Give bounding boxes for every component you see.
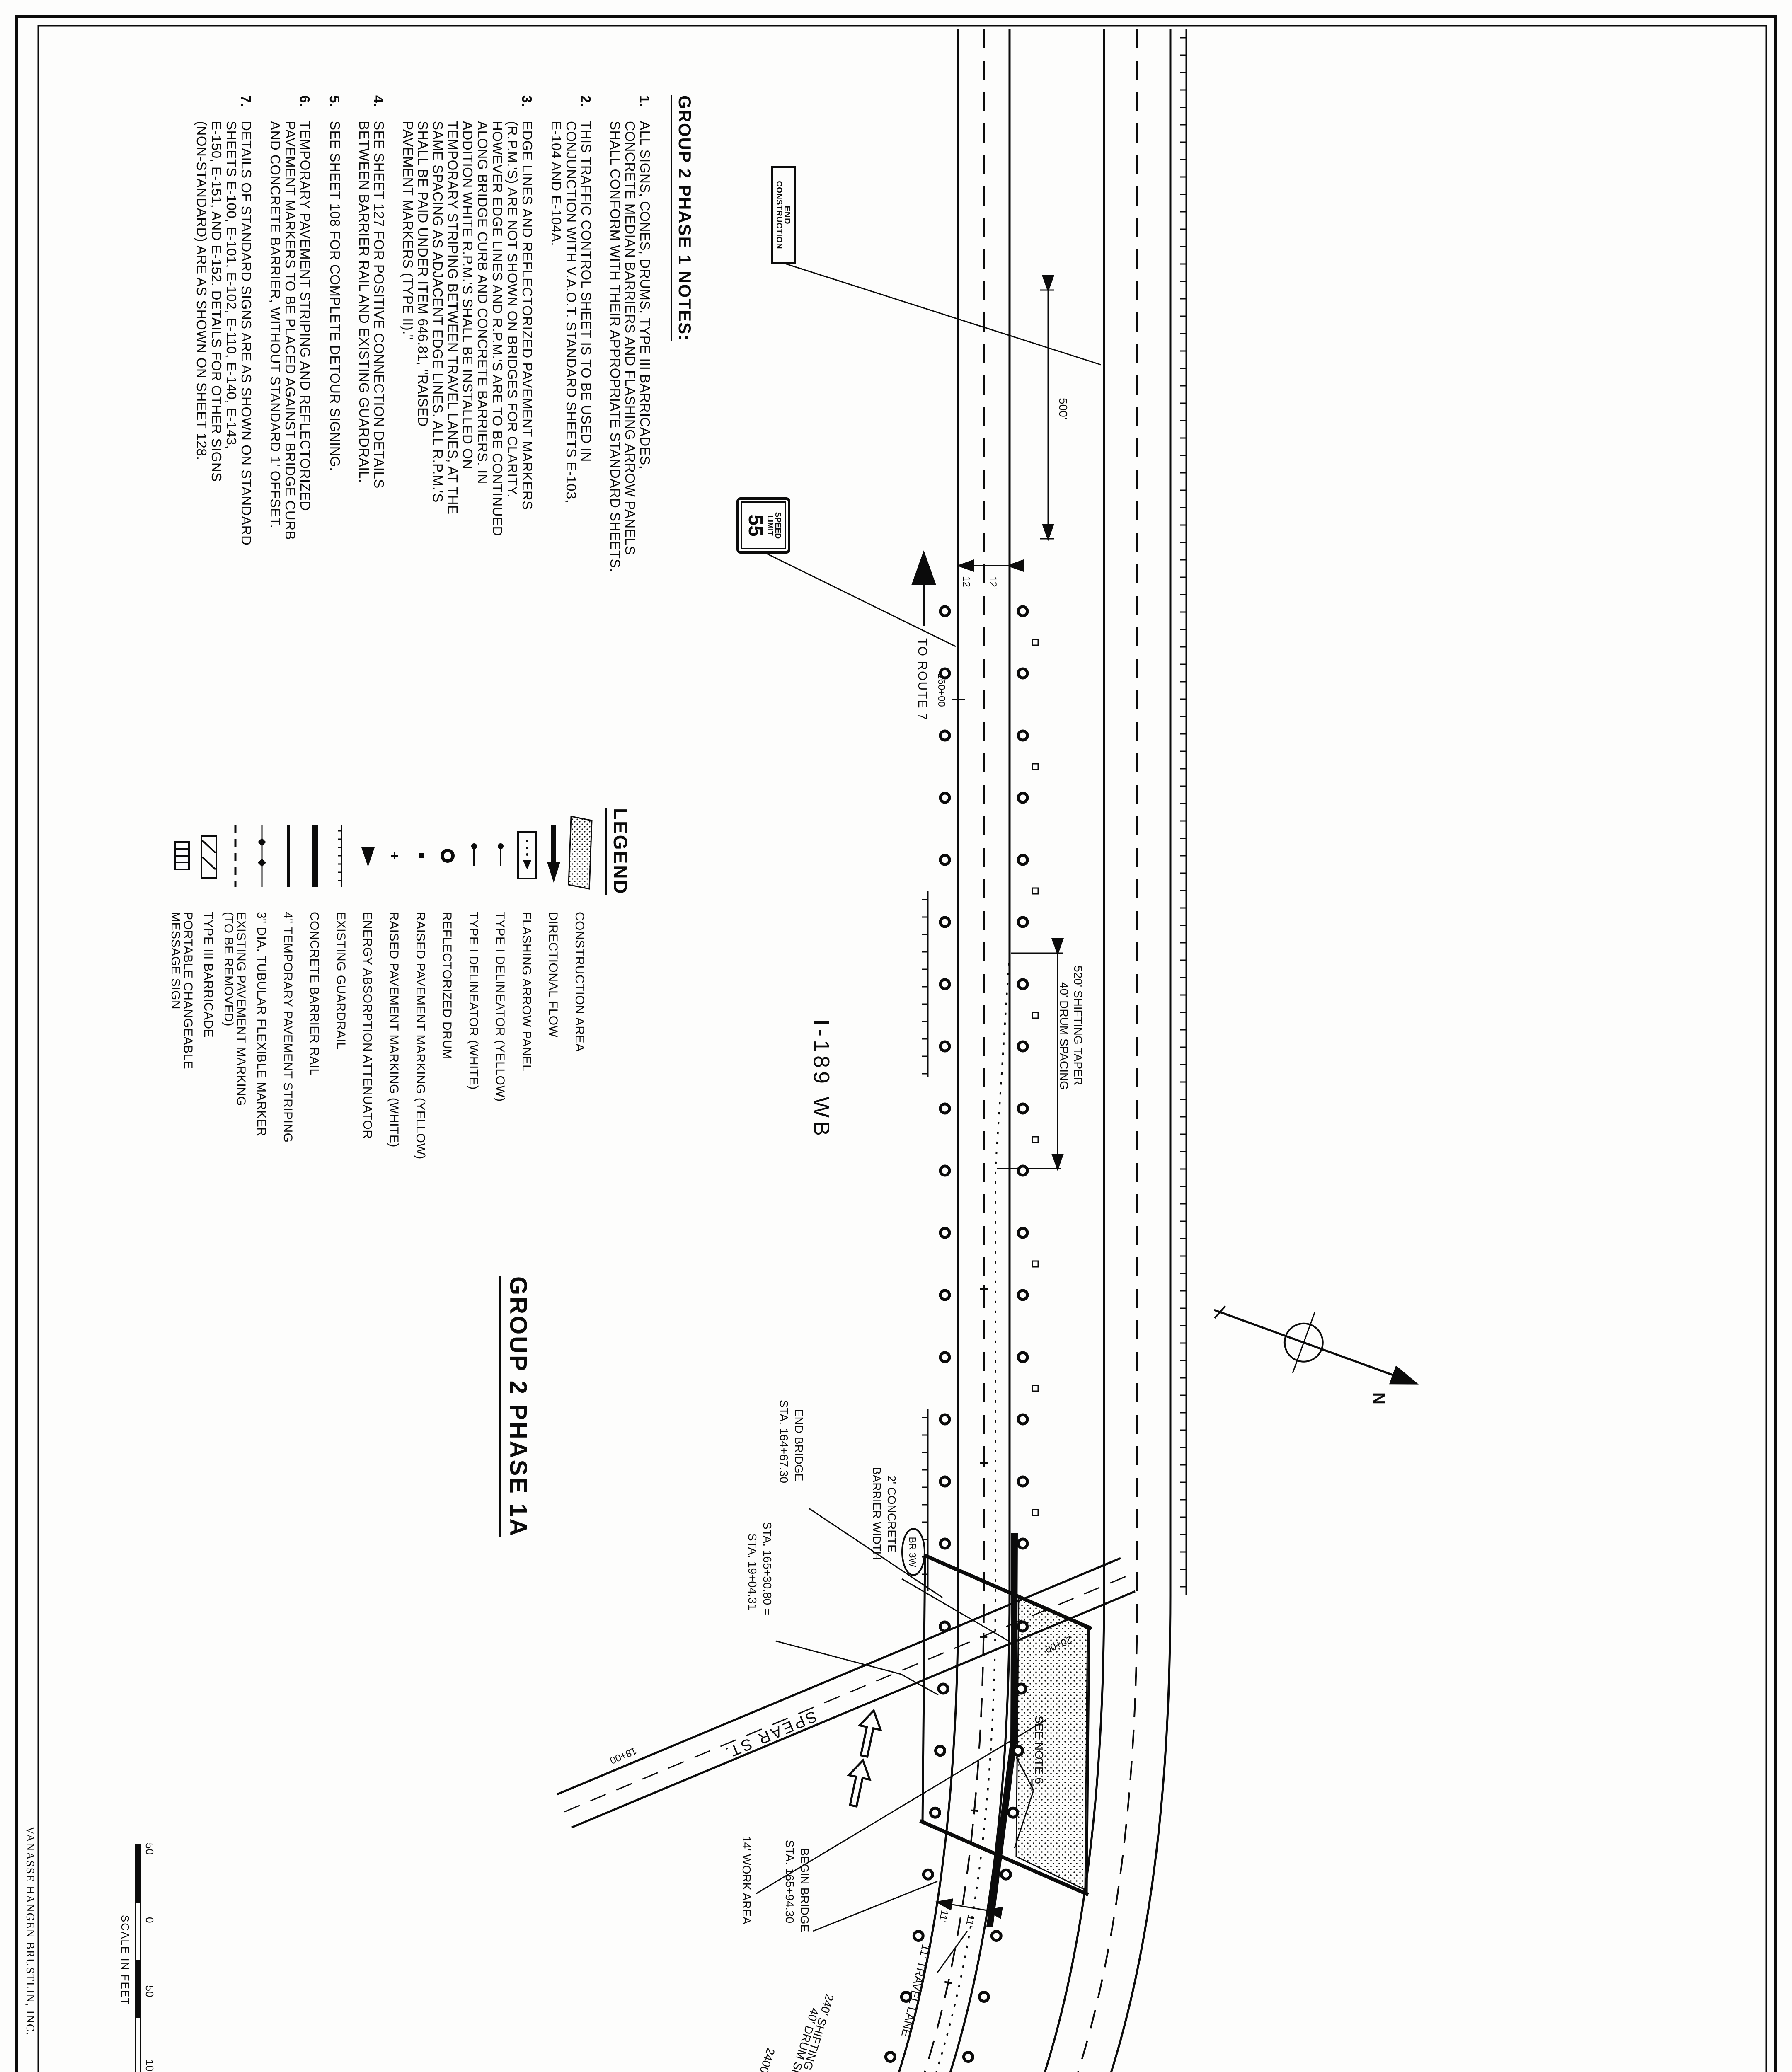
scale-num-50l: 50 bbox=[143, 1843, 156, 1855]
note-3-number: 3. bbox=[400, 95, 535, 121]
note-1-text: ALL SIGNS, CONES, DRUMS, TYPE III BARRIC… bbox=[608, 121, 652, 572]
note-7-text: DETAILS OF STANDARD SIGNS ARE AS SHOWN O… bbox=[194, 121, 254, 545]
square-marks bbox=[1032, 639, 1038, 1515]
note-6-number: 6. bbox=[268, 95, 312, 121]
legend-title: LEGEND bbox=[605, 808, 632, 895]
concrete-barrier-rail-icon bbox=[312, 825, 318, 887]
label-taper520-1: 520' SHIFTING TAPER bbox=[1072, 966, 1085, 1085]
note-2-number: 2. bbox=[549, 95, 593, 121]
plus-marks bbox=[722, 1285, 988, 2072]
scale-bar-graphic bbox=[135, 1844, 141, 2072]
end-construction-line1: END bbox=[783, 206, 792, 224]
rpm-white-icon bbox=[391, 852, 398, 859]
label-end-bridge-1: END BRIDGE bbox=[792, 1409, 805, 1481]
directional-flow-icon bbox=[547, 825, 560, 883]
tick-marks bbox=[1180, 38, 1186, 1587]
existing-guardrail-icon bbox=[338, 825, 341, 887]
speed-limit-word2: LIMIT bbox=[766, 515, 774, 536]
tick-marks bbox=[922, 900, 928, 1074]
tubular-marker-icon bbox=[258, 825, 266, 887]
label-dim12-b: 12' bbox=[961, 576, 972, 589]
note-4-text: SEE SHEET 127 FOR POSITIVE CONNECTION DE… bbox=[356, 121, 386, 489]
scale-numbers: 50 0 50 100 bbox=[143, 1843, 156, 2072]
note-6: 6. TEMPORARY PAVEMENT STRIPING AND REFLE… bbox=[268, 95, 312, 588]
legend-symbols bbox=[167, 808, 593, 908]
scale-num-50r: 50 bbox=[143, 1985, 156, 1997]
drum-marks bbox=[842, 1622, 949, 2072]
construction-area-icon bbox=[569, 816, 592, 889]
scale-num-100: 100 bbox=[143, 2060, 156, 2072]
rpm-line bbox=[724, 1202, 984, 2072]
note-2: 2. THIS TRAFFIC CONTROL SHEET IS TO BE U… bbox=[549, 95, 593, 588]
note-4: 4. SEE SHEET 127 FOR POSITIVE CONNECTION… bbox=[356, 95, 386, 588]
note-1: 1. ALL SIGNS, CONES, DRUMS, TYPE III BAR… bbox=[608, 95, 652, 588]
label-work-area: 14' WORK AREA bbox=[740, 1836, 753, 1924]
landscape-sheet: BR 3W bbox=[0, 0, 1792, 2072]
note-2-text: THIS TRAFFIC CONTROL SHEET IS TO BE USED… bbox=[549, 121, 593, 503]
speed-limit-word1: SPEED bbox=[774, 512, 782, 539]
label-end-bridge-2: STA. 164+67.30 bbox=[777, 1400, 790, 1483]
label-see-note-6: SEE NOTE 6 bbox=[1033, 1716, 1046, 1784]
bridge-fascia-bottom bbox=[923, 1558, 925, 1823]
label-sta-eq-2: STA. 19+04.31 bbox=[746, 1533, 759, 1610]
note-5: 5. SEE SHEET 108 FOR COMPLETE DETOUR SIG… bbox=[327, 95, 342, 588]
bridge-end-left bbox=[923, 1555, 1092, 1629]
flashing-arrow-panel-icon bbox=[518, 832, 536, 879]
portable-message-sign-icon bbox=[175, 842, 189, 869]
note-4-number: 4. bbox=[356, 95, 386, 121]
label-dim12-a: 12' bbox=[987, 576, 998, 589]
bridge-number-text: BR 3W bbox=[907, 1537, 918, 1567]
note-7-number: 7. bbox=[194, 95, 254, 121]
label-dim11-b: 11' bbox=[937, 1909, 950, 1923]
sheet-scan: BR 3W bbox=[0, 0, 1792, 2072]
construction-area-bridge bbox=[1016, 1595, 1087, 1890]
type1-delineator-yellow-icon bbox=[498, 843, 504, 866]
label-radius-2400: 2400' RADIUS bbox=[742, 2046, 777, 2072]
label-spear-st: SPEAR ST. bbox=[721, 1707, 819, 1762]
notes-block: GROUP 2 PHASE 1 NOTES: 1. ALL SIGNS, CON… bbox=[180, 95, 695, 588]
note-5-text: SEE SHEET 108 FOR COMPLETE DETOUR SIGNIN… bbox=[327, 121, 342, 471]
label-taper520-2: 40' DRUM SPACING bbox=[1058, 982, 1070, 1090]
label-dim500: 500' bbox=[1057, 398, 1070, 419]
label-i189wb: I-189 WB bbox=[809, 1019, 834, 1139]
label-to-route-7: TO ROUTE 7 bbox=[915, 638, 929, 721]
temporary-striping bbox=[730, 953, 1010, 2072]
note-7: 7. DETAILS OF STANDARD SIGNS ARE AS SHOW… bbox=[194, 95, 254, 588]
label-begin-bridge-2: STA. 165+94.30 bbox=[783, 1840, 796, 1923]
north-label: N bbox=[1370, 1392, 1388, 1404]
label-barrier-1: 2' CONCRETE bbox=[885, 1475, 898, 1552]
note-6-text: TEMPORARY PAVEMENT STRIPING AND REFLECTO… bbox=[268, 121, 312, 540]
label-travel-lane: 11' TRAVEL LANE bbox=[899, 1943, 933, 2038]
drum-marks bbox=[940, 607, 949, 1548]
note-3: 3. EDGE LINES AND REFLECTORIZED PAVEMENT… bbox=[400, 95, 535, 588]
note-1-number: 1. bbox=[608, 95, 652, 121]
speed-limit-value: 55 bbox=[745, 514, 765, 536]
note-ref-underlines bbox=[685, 1779, 1032, 2072]
label-dim11-a: 11' bbox=[963, 1914, 976, 1928]
phase-title: GROUP 2 PHASE 1A bbox=[499, 1276, 532, 1537]
rpm-yellow-icon bbox=[419, 853, 424, 858]
end-construction-sign: END CONSTRUCTION bbox=[771, 166, 796, 264]
energy-attenuator-icon bbox=[361, 847, 375, 867]
drum-marks bbox=[1018, 607, 1027, 1548]
label-barrier-2: BARRIER WIDTH bbox=[870, 1467, 883, 1560]
type3-barricade-icon bbox=[201, 836, 216, 878]
note-5-number: 5. bbox=[327, 95, 342, 121]
legend: LEGEND bbox=[168, 808, 632, 1243]
firm-name: VANASSE HANGEN BRUSTLIN, INC. bbox=[24, 1774, 36, 2072]
notes-header: GROUP 2 PHASE 1 NOTES: bbox=[671, 95, 695, 341]
reflectorized-drum-icon bbox=[442, 850, 453, 861]
note-3-text: EDGE LINES AND REFLECTORIZED PAVEMENT MA… bbox=[400, 121, 535, 536]
end-construction-line2: CONSTRUCTION bbox=[775, 181, 783, 249]
speed-limit-sign: SPEED LIMIT 55 bbox=[736, 497, 790, 554]
scale-bar: 50 0 50 100 SCALE IN FEET bbox=[119, 1836, 156, 2072]
north-arrow bbox=[1203, 1280, 1430, 1415]
type1-delineator-white-icon bbox=[471, 843, 477, 866]
scale-caption: SCALE IN FEET bbox=[119, 1836, 131, 2072]
scale-num-0: 0 bbox=[143, 1917, 156, 1923]
label-begin-bridge-1: BEGIN BRIDGE bbox=[798, 1848, 811, 1932]
label-sta-eq-1: STA. 165+30.80 = bbox=[761, 1522, 774, 1615]
